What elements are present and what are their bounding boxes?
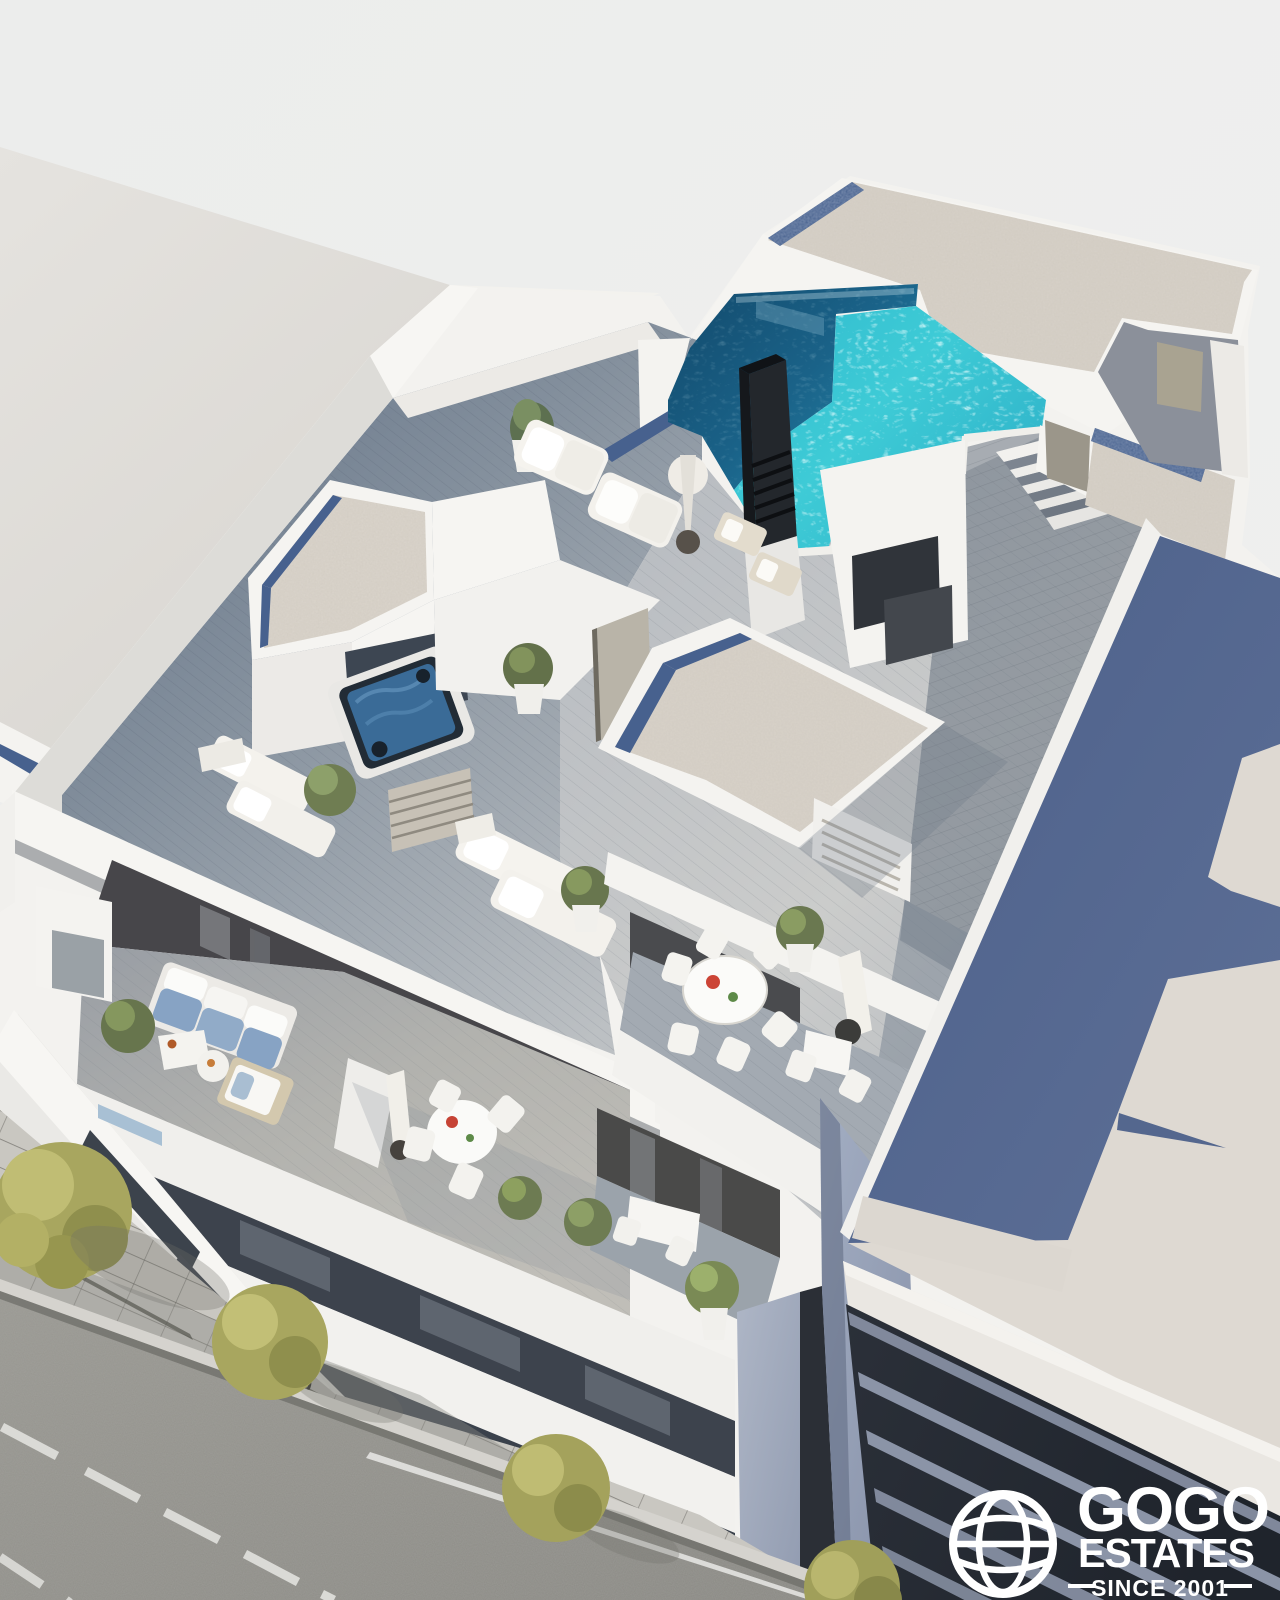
svg-text:ESTATES: ESTATES [1078,1530,1254,1576]
svg-text:SINCE 2001: SINCE 2001 [1091,1575,1229,1600]
